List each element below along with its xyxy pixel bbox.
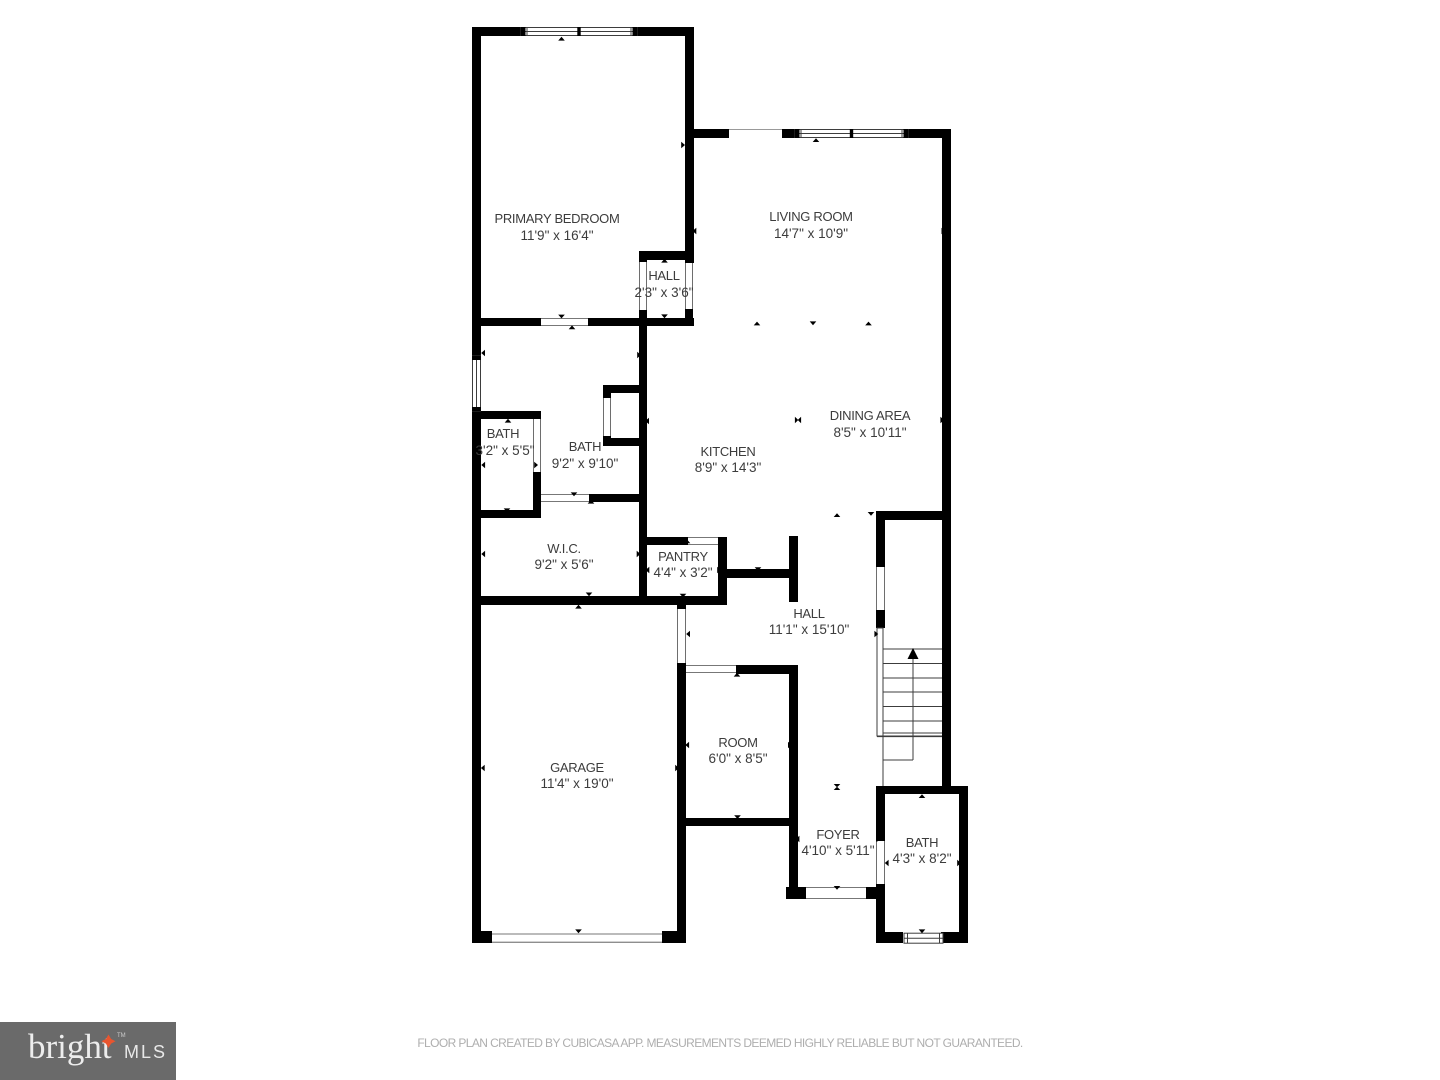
- svg-text:FOYER: FOYER: [816, 827, 859, 842]
- svg-text:PRIMARY BEDROOM: PRIMARY BEDROOM: [494, 211, 619, 226]
- svg-text:BATH: BATH: [906, 835, 939, 850]
- svg-text:ROOM: ROOM: [718, 735, 757, 750]
- svg-text:KITCHEN: KITCHEN: [701, 444, 756, 459]
- svg-text:9'2" x 5'6": 9'2" x 5'6": [534, 557, 593, 572]
- svg-text:9'2" x 9'10": 9'2" x 9'10": [552, 456, 619, 471]
- svg-text:FLOOR PLAN CREATED BY CUBICASA: FLOOR PLAN CREATED BY CUBICASA APP. MEAS…: [417, 1036, 1023, 1050]
- svg-text:TM: TM: [117, 1033, 126, 1039]
- svg-text:LIVING ROOM: LIVING ROOM: [769, 209, 852, 224]
- svg-text:11'9" x 16'4": 11'9" x 16'4": [520, 228, 593, 243]
- svg-text:4'4" x 3'2": 4'4" x 3'2": [653, 565, 712, 580]
- svg-text:GARAGE: GARAGE: [550, 760, 604, 775]
- svg-text:BATH: BATH: [487, 426, 520, 441]
- svg-text:bright: bright: [28, 1027, 112, 1066]
- svg-text:MLS: MLS: [124, 1042, 167, 1062]
- svg-text:2'3" x 3'6": 2'3" x 3'6": [634, 285, 693, 300]
- svg-text:6'0" x 8'5": 6'0" x 8'5": [708, 751, 767, 766]
- svg-text:8'5" x 10'11": 8'5" x 10'11": [833, 425, 906, 440]
- svg-text:3'2" x 5'5": 3'2" x 5'5": [475, 443, 534, 458]
- svg-text:8'9" x 14'3": 8'9" x 14'3": [695, 460, 762, 475]
- svg-text:4'3" x 8'2": 4'3" x 8'2": [892, 851, 951, 866]
- svg-text:PANTRY: PANTRY: [658, 549, 708, 564]
- svg-text:HALL: HALL: [648, 268, 679, 283]
- svg-text:BATH: BATH: [569, 439, 602, 454]
- svg-text:W.I.C.: W.I.C.: [547, 541, 581, 556]
- svg-text:14'7" x 10'9": 14'7" x 10'9": [774, 226, 848, 241]
- svg-text:11'1" x 15'10": 11'1" x 15'10": [769, 622, 850, 637]
- svg-text:4'10" x 5'11": 4'10" x 5'11": [801, 843, 874, 858]
- svg-text:11'4" x 19'0": 11'4" x 19'0": [540, 776, 613, 791]
- svg-text:HALL: HALL: [793, 606, 824, 621]
- svg-text:DINING AREA: DINING AREA: [830, 408, 911, 423]
